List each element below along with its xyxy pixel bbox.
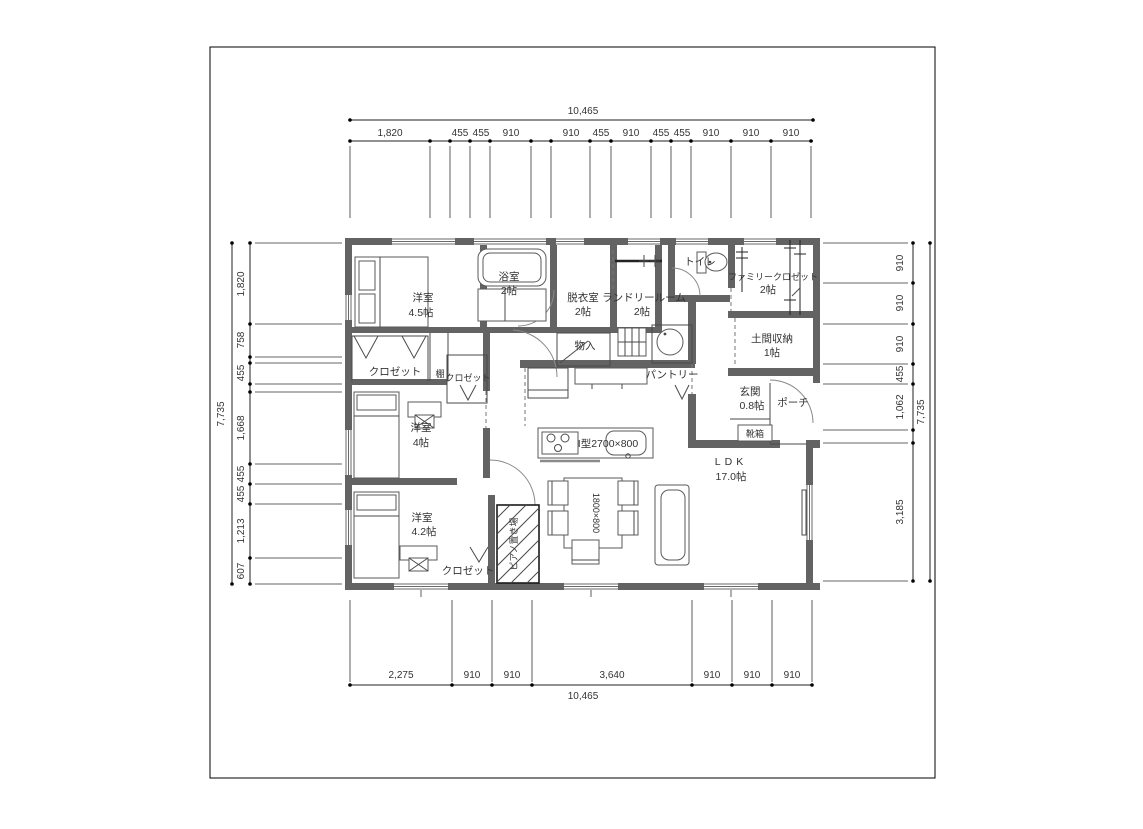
dim-label: 910 — [743, 128, 760, 139]
dim-label: 910 — [563, 128, 580, 139]
left-dimension-block: 7,735 1,820 758 455 1,668 455 455 1,213 … — [216, 241, 342, 586]
dim-top-overall: 10,465 — [568, 106, 599, 117]
dim-label: 3,640 — [599, 670, 624, 681]
pantry-door — [675, 385, 689, 399]
left-dim-ticks — [248, 241, 342, 586]
dining-table-label: 1800×800 — [591, 493, 601, 533]
window — [474, 238, 546, 245]
window — [676, 238, 708, 245]
shoe-cabinet-label: 靴箱 — [746, 428, 764, 439]
dim-label: 910 — [464, 670, 481, 681]
room-bedroom-3: 洋室 4.2帖 — [411, 511, 437, 538]
room-family-closet: ファミリークロゼット 2帖 — [728, 271, 818, 296]
sofa — [655, 485, 689, 565]
dim-label: 758 — [236, 331, 247, 348]
bottom-dim-labels: 2,275 910 910 3,640 910 910 910 — [388, 670, 800, 681]
dim-label: 910 — [895, 335, 906, 352]
window — [744, 238, 776, 245]
closet-3-label: クロゼット — [442, 565, 495, 577]
refrigerator-space — [528, 368, 568, 398]
room-label: ランドリールーム — [602, 292, 686, 304]
page-frame — [210, 47, 935, 778]
room-area: 2帖 — [634, 305, 651, 318]
room-area: 0.8帖 — [739, 399, 765, 412]
window — [704, 583, 758, 597]
kitchen-label: I型2700×800 — [578, 437, 639, 450]
washing-machine — [618, 328, 646, 356]
piano-space-label: ピアノ置き場 — [508, 517, 519, 570]
pantry-label: パントリー — [645, 369, 698, 381]
room-area: 2帖 — [575, 305, 592, 318]
top-dim-ticks — [348, 139, 813, 218]
room-label: 土間収納 — [751, 332, 793, 345]
dim-label: 910 — [503, 128, 520, 139]
dim-label: 1,820 — [236, 271, 247, 296]
window — [345, 295, 352, 320]
shelf-label: 棚 — [435, 368, 444, 379]
room-area: 4.5帖 — [408, 306, 434, 319]
room-area: 17.0帖 — [716, 470, 747, 483]
room-label: 洋室 — [411, 421, 432, 434]
dim-label: 455 — [653, 128, 670, 139]
dim-label: 910 — [504, 670, 521, 681]
top-dimension-block: 10,465 1,820 455 455 910 910 455 — [348, 106, 815, 218]
dim-bottom-overall: 10,465 — [568, 691, 599, 702]
window — [628, 238, 660, 245]
dim-label: 455 — [473, 128, 490, 139]
dim-label: 1,213 — [236, 518, 247, 543]
window — [556, 238, 584, 245]
dim-label: 455 — [895, 365, 906, 382]
single-bed-2 — [354, 392, 399, 478]
window — [392, 238, 455, 245]
window — [802, 485, 813, 540]
desk-3 — [400, 546, 437, 571]
dim-label: 910 — [895, 294, 906, 311]
closet-main-label: クロゼット — [369, 366, 422, 378]
room-doma-storage: 土間収納 1帖 — [751, 332, 793, 359]
dim-label: 607 — [236, 562, 247, 579]
room-label: LDK — [715, 456, 747, 468]
single-bed-3 — [354, 492, 399, 578]
dim-label: 910 — [895, 254, 906, 271]
room-entrance: 玄関 0.8帖 — [739, 385, 765, 412]
dim-label: 455 — [236, 364, 247, 381]
room-label: 浴室 — [499, 270, 520, 283]
room-ldk: LDK 17.0帖 — [715, 456, 747, 483]
dim-label: 455 — [452, 128, 469, 139]
window — [564, 583, 618, 597]
dim-label: 455 — [236, 465, 247, 482]
closet-mid-label: クロゼット — [445, 372, 490, 383]
dim-label: 910 — [783, 128, 800, 139]
dim-label: 910 — [703, 128, 720, 139]
dim-label: 910 — [623, 128, 640, 139]
window — [394, 583, 448, 597]
room-area: 2帖 — [501, 284, 518, 297]
room-bedroom-2: 洋室 4帖 — [411, 421, 432, 449]
room-area: 4帖 — [413, 436, 430, 449]
dim-label: 1,062 — [895, 394, 906, 419]
kitchen-counter — [575, 368, 647, 389]
closet-3-door — [470, 547, 488, 562]
dim-left-overall: 7,735 — [216, 401, 227, 426]
window — [345, 510, 352, 545]
dim-right-overall: 7,735 — [916, 399, 927, 424]
room-area: 2帖 — [760, 283, 777, 296]
room-label: 脱衣室 — [567, 291, 599, 304]
bottom-dimension-block: 2,275 910 910 3,640 910 910 910 10,465 — [348, 600, 814, 702]
right-dim-labels: 910 910 910 455 1,062 3,185 — [895, 254, 906, 524]
dim-label: 3,185 — [895, 499, 906, 524]
dim-label: 455 — [236, 485, 247, 502]
top-dim-labels: 1,820 455 455 910 910 455 910 455 455 91… — [377, 128, 799, 139]
storage-label: 物入 — [575, 339, 596, 352]
window — [345, 430, 352, 475]
dim-label: 1,668 — [236, 415, 247, 440]
laundry-pole — [615, 255, 662, 267]
room-area: 1帖 — [764, 346, 781, 359]
dim-label: 1,820 — [377, 128, 402, 139]
left-dim-labels: 1,820 758 455 1,668 455 455 1,213 607 — [236, 271, 247, 579]
room-label: 洋室 — [413, 291, 434, 304]
room-dressing: 脱衣室 2帖 — [567, 291, 599, 318]
dim-label: 455 — [674, 128, 691, 139]
room-porch-label: ポーチ — [777, 397, 809, 409]
room-label: 洋室 — [412, 511, 433, 524]
dim-label: 2,275 — [388, 670, 413, 681]
room-area: 4.2帖 — [411, 525, 437, 538]
dim-label: 910 — [704, 670, 721, 681]
room-toilet-label: トイレ — [684, 256, 716, 268]
dim-label: 910 — [744, 670, 761, 681]
floor-plan-canvas: 10,465 1,820 455 455 910 910 455 — [0, 0, 1143, 829]
right-dimension-block: 7,735 910 910 910 455 1,062 3,185 — [823, 241, 932, 583]
dim-label: 455 — [593, 128, 610, 139]
dim-label: 910 — [784, 670, 801, 681]
room-label: ファミリークロゼット — [728, 271, 818, 282]
room-label: 玄関 — [740, 385, 761, 398]
